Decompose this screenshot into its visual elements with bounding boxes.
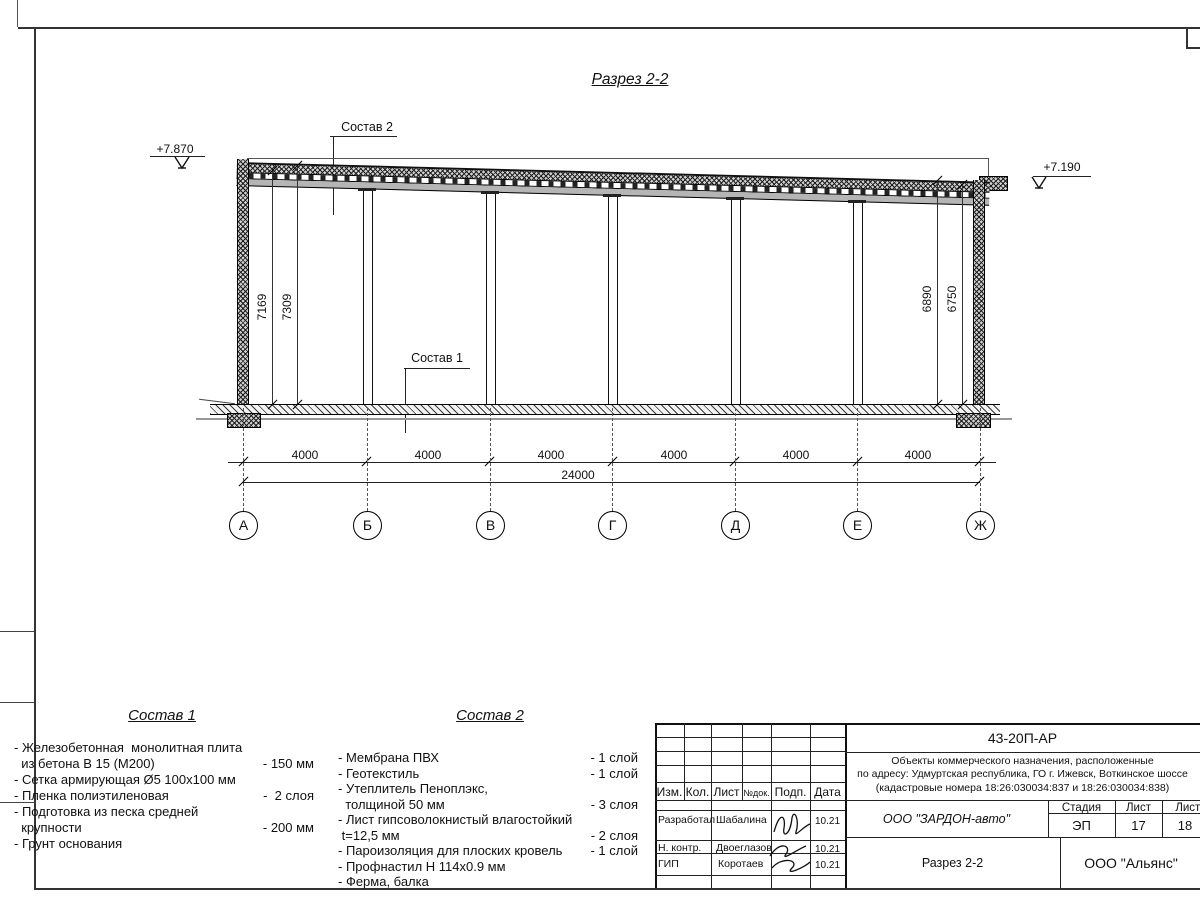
- tb-description-1: Объекты коммерческого назначения, распол…: [845, 755, 1200, 767]
- list-item: - Ферма, балка: [338, 874, 638, 890]
- ground-line: [196, 418, 1012, 420]
- foundation-right: [956, 413, 991, 428]
- tb-line: [711, 723, 712, 888]
- column: [853, 203, 863, 405]
- list-item: - Подготовка из песка средней: [14, 804, 314, 820]
- tb-line: [655, 723, 657, 888]
- fold-mark: [0, 702, 34, 703]
- tb-description-3: (кадастровые номера 18:26:030034:837 и 1…: [845, 782, 1200, 794]
- list-item: из бетона В 15 (М200)- 150 мм: [14, 756, 314, 772]
- bay-dim: 4000: [644, 448, 704, 462]
- tb-col-list: Лист: [711, 785, 742, 799]
- tb-line: [845, 752, 1200, 753]
- foundation-left: [227, 413, 261, 428]
- elevation-left-value: +7.870: [148, 142, 202, 156]
- tb-col-podp: Подп.: [771, 785, 810, 799]
- signature: [770, 806, 814, 840]
- tb-line: [655, 751, 845, 752]
- materials1-list: - Железобетонная монолитная плита из бет…: [14, 740, 314, 852]
- elevation-right-value: +7.190: [1034, 160, 1090, 174]
- fold-mark: [0, 631, 34, 632]
- dim-line-6890: [937, 181, 938, 405]
- tb-stage-value: ЭП: [1048, 818, 1115, 833]
- tb-stage-label: Стадия: [1048, 802, 1115, 814]
- tb-col-izm: Изм.: [655, 785, 684, 799]
- axis-bubble-zh: Ж: [966, 511, 995, 540]
- list-item: - Мембрана ПВХ- 1 слой: [338, 750, 638, 766]
- tb-line: [655, 875, 845, 876]
- tb-line: [655, 765, 845, 766]
- dim-value-6750: 6750: [945, 275, 959, 323]
- axis-bubble-g: Г: [598, 511, 627, 540]
- dim-line-7169: [272, 171, 273, 405]
- list-item: - Профнастил Н 114x0.9 мм: [338, 859, 638, 875]
- list-item: - Геотекстиль- 1 слой: [338, 766, 638, 782]
- list-item: t=12,5 мм- 2 слоя: [338, 828, 638, 844]
- tb-col-kol: Кол.: [684, 785, 711, 799]
- tb-sheets-label: Листов: [1164, 802, 1200, 814]
- tb-line: [655, 782, 845, 783]
- dim-line-6750: [962, 185, 963, 405]
- list-item: - Лист гипсоволокнистый влагостойкий: [338, 812, 638, 828]
- tb-col-ndok: №док.: [742, 788, 771, 798]
- axis-line: [857, 408, 858, 511]
- tb-line: [655, 800, 1200, 801]
- tb-line: [655, 737, 845, 738]
- tb-role: ГИП: [658, 858, 679, 870]
- list-item: - Железобетонная монолитная плита: [14, 740, 314, 756]
- column: [731, 200, 741, 405]
- total-dim: 24000: [548, 468, 608, 482]
- column: [608, 197, 618, 405]
- tb-name: Коротаев: [718, 858, 763, 870]
- axis-line: [490, 408, 491, 511]
- tb-col-data: Дата: [810, 785, 845, 799]
- axis-line: [735, 408, 736, 511]
- tb-role: Разработал: [658, 814, 715, 826]
- tb-line: [655, 810, 845, 811]
- list-item: крупности- 200 мм: [14, 820, 314, 836]
- axis-bubble-d: Д: [721, 511, 750, 540]
- column: [486, 194, 496, 405]
- bay-dim: 4000: [398, 448, 458, 462]
- wall-right: [973, 180, 985, 405]
- list-item: - Утеплитель Пеноплэкс,: [338, 781, 638, 797]
- axis-line: [980, 408, 981, 511]
- list-item: толщиной 50 мм- 3 слоя: [338, 797, 638, 813]
- axis-line: [367, 408, 368, 511]
- bay-dim: 4000: [521, 448, 581, 462]
- sostav1-leader-drop: [405, 368, 406, 433]
- sostav2-leader-label: Состав 2: [334, 120, 400, 134]
- section-title: Разрез 2-2: [520, 71, 740, 89]
- column: [363, 191, 373, 405]
- dim-value-7309: 7309: [280, 283, 294, 331]
- dim-value-7169: 7169: [255, 283, 269, 331]
- tb-role: Н. контр.: [658, 842, 701, 854]
- frame-edge-notch: [17, 0, 18, 27]
- list-item: - Пленка полиэтиленовая- 2 слоя: [14, 788, 314, 804]
- frame-corner-box: [1186, 27, 1200, 49]
- frame-top: [18, 27, 1200, 29]
- tb-sheet-title: Разрез 2-2: [845, 856, 1060, 870]
- parapet-right-edge: [988, 158, 989, 178]
- axis-bubble-e: Е: [843, 511, 872, 540]
- axis-line: [243, 408, 244, 511]
- materials1-heading: Состав 1: [102, 707, 222, 724]
- tb-org: ООО "Альянс": [1060, 855, 1200, 871]
- parapet-projection-line: [247, 158, 988, 159]
- tb-line: [655, 840, 845, 841]
- tb-description-2: по адресу: Удмуртская республика, ГО г. …: [845, 768, 1200, 780]
- tb-sheet-value: 17: [1115, 818, 1162, 833]
- bay-dim: 4000: [766, 448, 826, 462]
- list-item: - Пароизоляция для плоских кровель- 1 сл…: [338, 843, 638, 859]
- materials2-heading: Состав 2: [430, 707, 550, 724]
- signature: [766, 838, 814, 876]
- tb-line: [845, 837, 1200, 838]
- axis-bubble-v: В: [476, 511, 505, 540]
- materials2-list: - Мембрана ПВХ- 1 слой - Геотекстиль- 1 …: [338, 750, 638, 890]
- elevation-arrow-icon: [172, 156, 194, 172]
- tb-doc-code: 43-20П-АР: [845, 730, 1200, 746]
- sostav1-leader-label: Состав 1: [404, 351, 470, 365]
- bay-dim: 4000: [275, 448, 335, 462]
- axis-line: [612, 408, 613, 511]
- tb-company: ООО "ЗАРДОН-авто": [845, 812, 1048, 826]
- tb-sheets-value: 18: [1162, 818, 1200, 833]
- dim-line-7309: [297, 166, 298, 405]
- tb-date: 10.21: [811, 860, 844, 871]
- tb-date: 10.21: [811, 816, 844, 827]
- axis-bubble-a: А: [229, 511, 258, 540]
- list-item: - Грунт основания: [14, 836, 314, 852]
- tb-date: 10.21: [811, 844, 844, 855]
- floor-slab: [210, 404, 1000, 415]
- sostav2-leader-line: [330, 136, 397, 137]
- axis-bubble-b: Б: [353, 511, 382, 540]
- tb-line: [655, 723, 1200, 725]
- dim-value-6890: 6890: [920, 275, 934, 323]
- bay-dim: 4000: [888, 448, 948, 462]
- sostav1-leader-line: [404, 368, 470, 369]
- wall-left: [237, 159, 249, 405]
- tb-name: Двоеглазов: [716, 842, 772, 854]
- drawing-sheet: Разрез 2-2 +7.870 +7.190 Состав 2 Состав…: [0, 0, 1200, 900]
- list-item: - Сетка армирующая Ø5 100x100 мм: [14, 772, 314, 788]
- tb-name: Шабалина: [716, 814, 767, 826]
- elevation-arrow-icon: [1029, 176, 1051, 192]
- tb-sheet-label: Лист: [1115, 802, 1162, 814]
